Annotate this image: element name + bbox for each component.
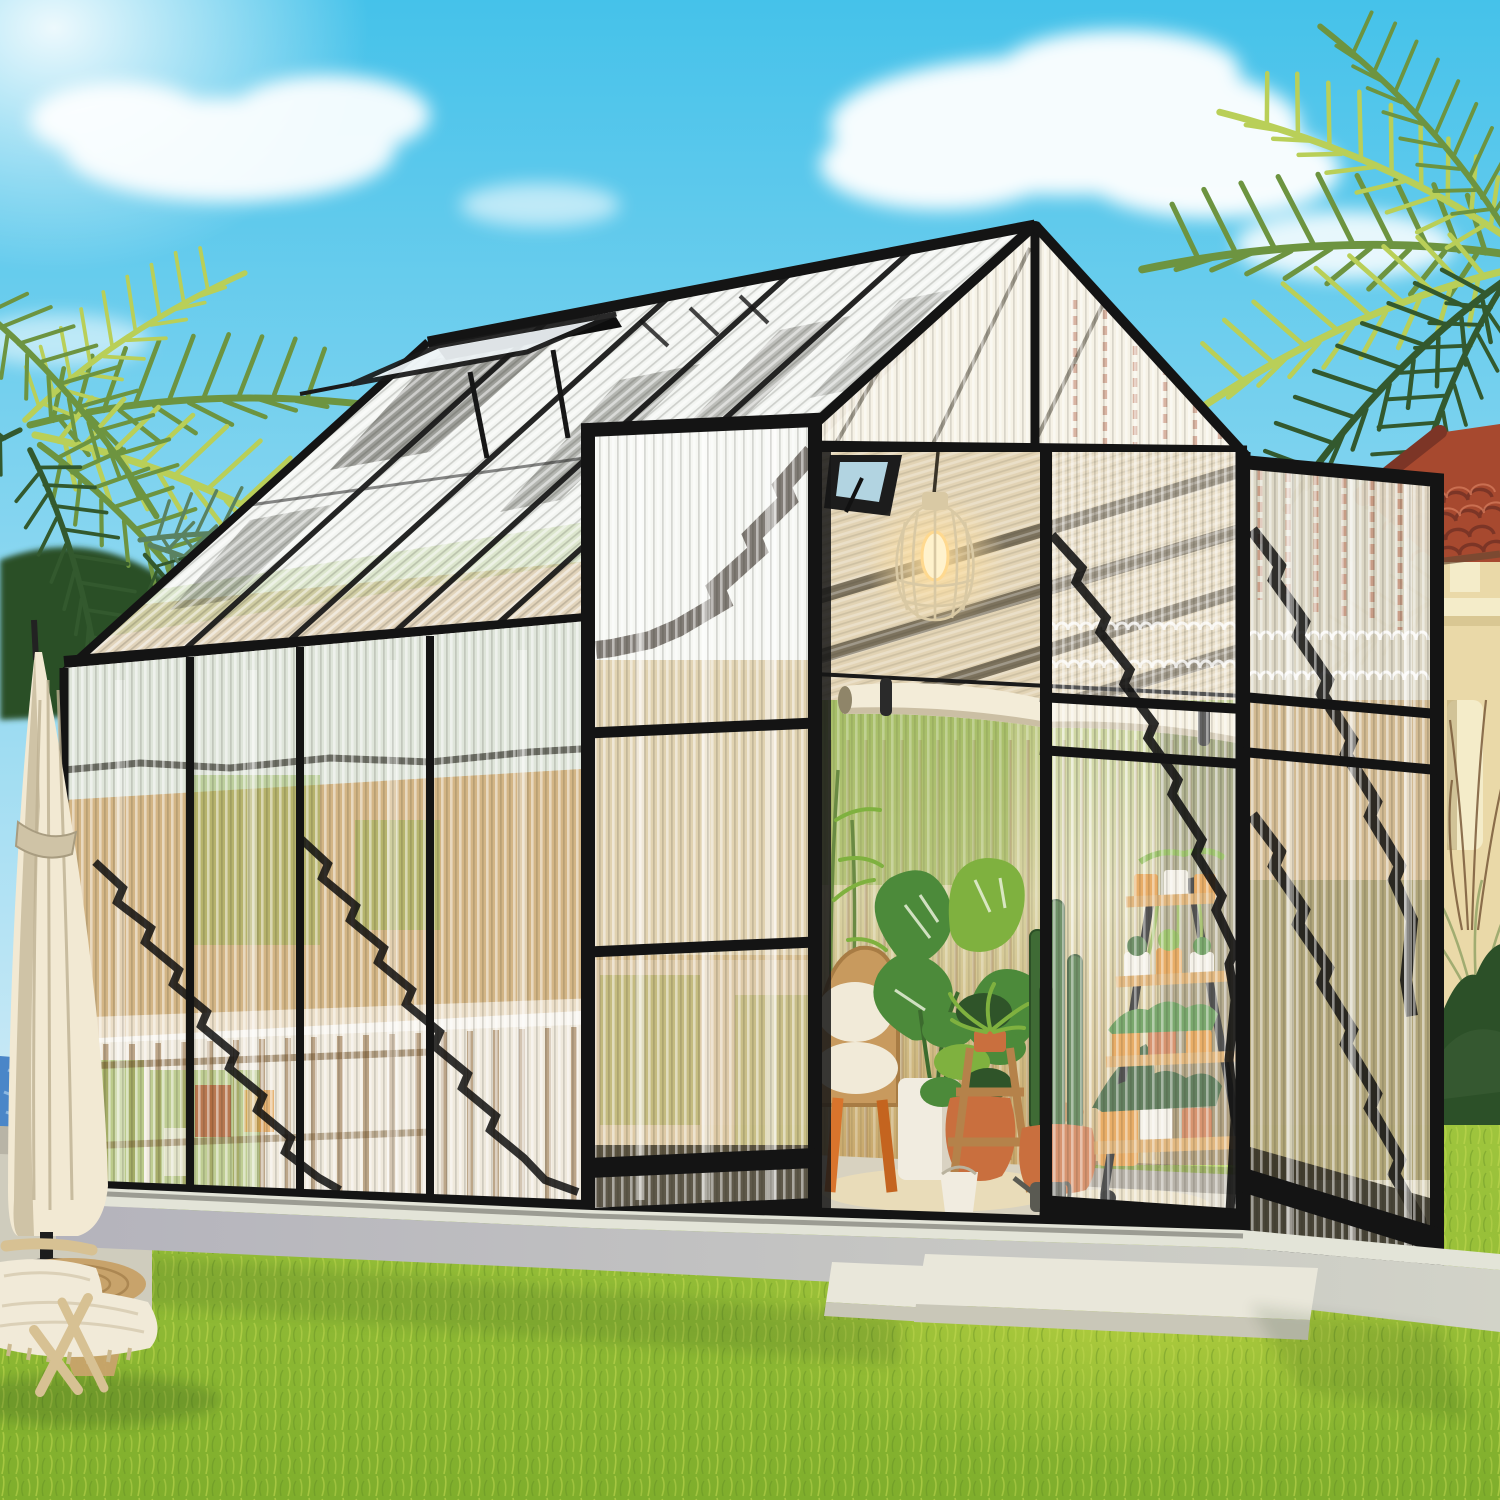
- door-header-beam: [806, 447, 1247, 452]
- left-side-wall: [60, 610, 605, 1220]
- greenhouse-product-photo: Backyard greenhouse with black aluminum …: [0, 0, 1500, 1500]
- interior-vent-open: [824, 455, 902, 516]
- cornice-shadow: [1436, 616, 1500, 626]
- shade-roll-end: [838, 686, 852, 714]
- left-door-open: [586, 418, 818, 1218]
- fern-pot: [974, 1030, 1006, 1052]
- photo-canvas: Backyard greenhouse with black aluminum …: [0, 0, 1500, 1500]
- cornice-molding: [1436, 598, 1500, 616]
- white-bucket: [940, 1167, 978, 1212]
- chair-back-frame: [6, 1244, 92, 1250]
- cloud: [460, 183, 620, 227]
- door-hinge: [1238, 1020, 1248, 1046]
- shade-strap: [880, 678, 892, 716]
- door-hinge: [1238, 700, 1248, 726]
- door-bottom-rail: [588, 1158, 815, 1168]
- front-sidelight-panel: [1040, 452, 1243, 1232]
- right-door-open: [1238, 460, 1443, 1300]
